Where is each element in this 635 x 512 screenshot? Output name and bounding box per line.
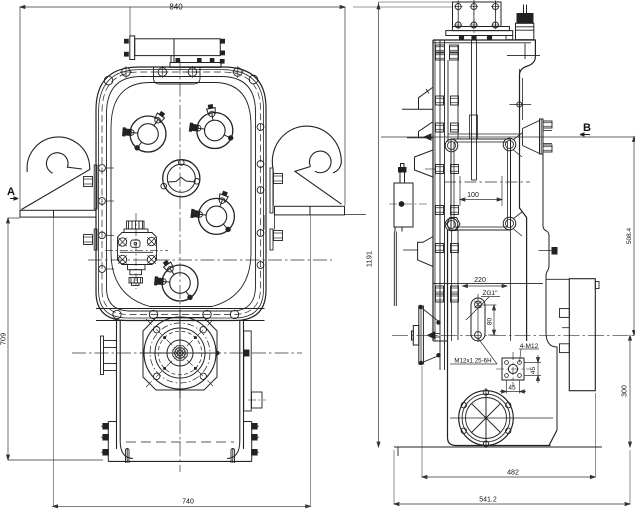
svg-text:482: 482 [507, 470, 519, 477]
svg-text:B: B [583, 122, 591, 134]
svg-text:1191: 1191 [365, 251, 374, 267]
svg-text:A: A [7, 186, 15, 198]
svg-text:840: 840 [169, 3, 183, 12]
svg-text:740: 740 [182, 499, 194, 506]
svg-text:300: 300 [622, 385, 629, 397]
svg-text:80: 80 [487, 318, 494, 326]
svg-text:45: 45 [508, 385, 516, 392]
svg-text:508.4: 508.4 [626, 227, 633, 244]
svg-text:M12x1.25-6H: M12x1.25-6H [454, 358, 491, 365]
svg-text:100: 100 [467, 192, 479, 199]
svg-text:ZG1": ZG1" [483, 290, 499, 297]
svg-text:45: 45 [530, 367, 537, 375]
svg-text:220: 220 [474, 277, 486, 284]
svg-text:709: 709 [0, 333, 8, 346]
svg-text:541.2: 541.2 [479, 497, 497, 504]
